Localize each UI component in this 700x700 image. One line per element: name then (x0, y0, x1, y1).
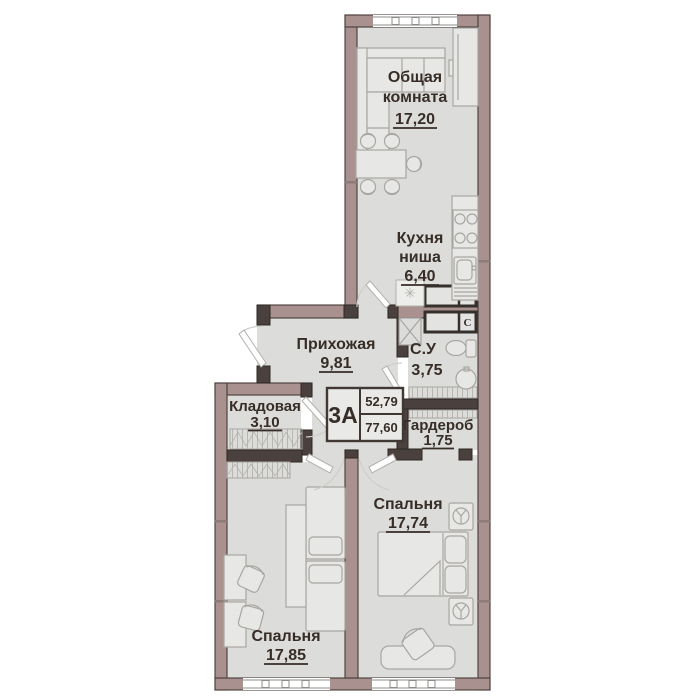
room-area: 3,10 (250, 414, 279, 431)
room-name: С.У (410, 341, 437, 358)
room-area: 9,81 (320, 355, 351, 372)
washer-symbol: ✳ (404, 286, 416, 302)
unit-type: 3А (328, 402, 357, 428)
room-name: Прихожая (297, 336, 376, 353)
room-name: комната (383, 89, 448, 106)
unit-area-total: 77,60 (365, 420, 398, 435)
floor-plan-page: C C (0, 0, 700, 700)
vent-symbol: C (464, 317, 472, 329)
room-area: 6,40 (404, 268, 435, 285)
room-area: 17,74 (388, 515, 428, 532)
room-area: 17,20 (395, 111, 435, 128)
room-name: ниша (399, 249, 441, 266)
storage-shelf (230, 429, 302, 449)
long-table (286, 505, 306, 607)
room-area: 3,75 (411, 362, 442, 379)
room-name: Общая (388, 69, 442, 86)
unit-area-living: 52,79 (365, 394, 398, 409)
room-area: 1,75 (423, 432, 452, 449)
single-bed (306, 561, 345, 631)
bedroom-left-shelf (227, 462, 290, 478)
stove-icon (453, 210, 478, 248)
toilet-icon (446, 340, 476, 357)
room-name: Спальня (373, 496, 442, 513)
window-bottom-right (372, 678, 455, 690)
window-top (373, 15, 457, 27)
nightstand (449, 598, 473, 625)
double-bed (378, 532, 468, 596)
single-bed (306, 487, 345, 559)
room-name: Кладовая (229, 398, 301, 415)
vent-duct-icon: C (425, 312, 476, 332)
window-bottom-left (243, 678, 330, 690)
wardrobe-cabinet (449, 28, 478, 106)
kitchen-counter (452, 196, 478, 300)
floor-plan: C C (0, 0, 700, 700)
room-area: 17,85 (266, 647, 306, 664)
room-name: Спальня (251, 628, 320, 645)
nightstand (449, 503, 473, 530)
room-name: Кухня (397, 230, 444, 247)
unit-stamp: 3А 52,79 77,60 (327, 388, 403, 441)
